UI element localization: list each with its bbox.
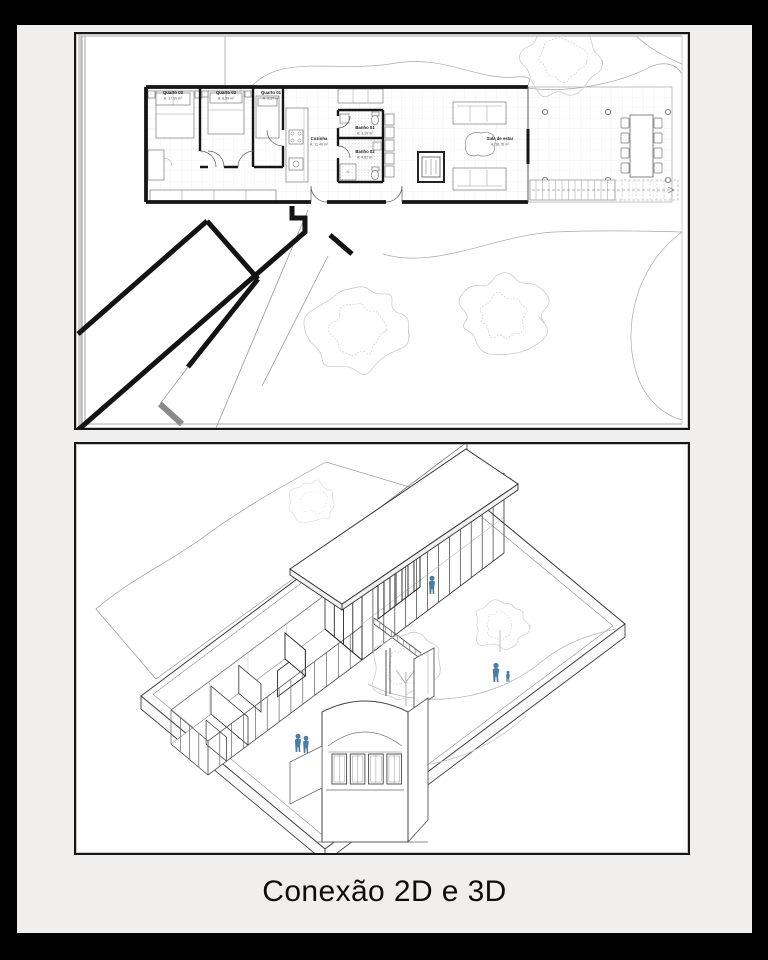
room-area-3: A: 9,17 m² bbox=[263, 96, 280, 100]
fireplace bbox=[418, 152, 444, 182]
slide-background: Quarto 03A: 17,50 m²Quarto 02A: 8,59 m²Q… bbox=[17, 25, 752, 933]
slide-caption: Conexão 2D e 3D bbox=[17, 873, 752, 911]
room-label-6: Banho 02 bbox=[355, 149, 375, 154]
room-area-2: A: 8,59 m² bbox=[218, 96, 235, 100]
room-label-1: Quarto 03 bbox=[163, 90, 184, 95]
room-label-2: Quarto 02 bbox=[216, 90, 237, 95]
room-area-5: A: 3,10 m² bbox=[357, 131, 374, 135]
axonometric-panel bbox=[74, 442, 690, 855]
floor-plan-drawing: Quarto 03A: 17,50 m²Quarto 02A: 8,59 m²Q… bbox=[76, 34, 688, 428]
scan-edge-strip bbox=[78, 34, 82, 428]
floor-plan-panel: Quarto 03A: 17,50 m²Quarto 02A: 8,59 m²Q… bbox=[74, 32, 690, 430]
room-label-4: Cozinha bbox=[311, 136, 328, 141]
axonometric-drawing bbox=[76, 444, 688, 853]
ramp-walls bbox=[78, 206, 352, 428]
room-area-7: A: 38,76 m² bbox=[491, 142, 510, 146]
presentation-page: { "caption": "Conexão 2D e 3D", "plan": … bbox=[0, 0, 768, 960]
room-label-7: Sala de estar bbox=[487, 136, 514, 141]
room-area-1: A: 17,50 m² bbox=[164, 96, 183, 100]
room-area-6: A: 4,62 m² bbox=[357, 155, 374, 159]
room-area-4: A: 11,40 m² bbox=[310, 142, 329, 146]
room-label-5: Banho 01 bbox=[355, 125, 375, 130]
room-label-3: Quarto 01 bbox=[261, 90, 282, 95]
bath-hatch bbox=[340, 112, 382, 181]
